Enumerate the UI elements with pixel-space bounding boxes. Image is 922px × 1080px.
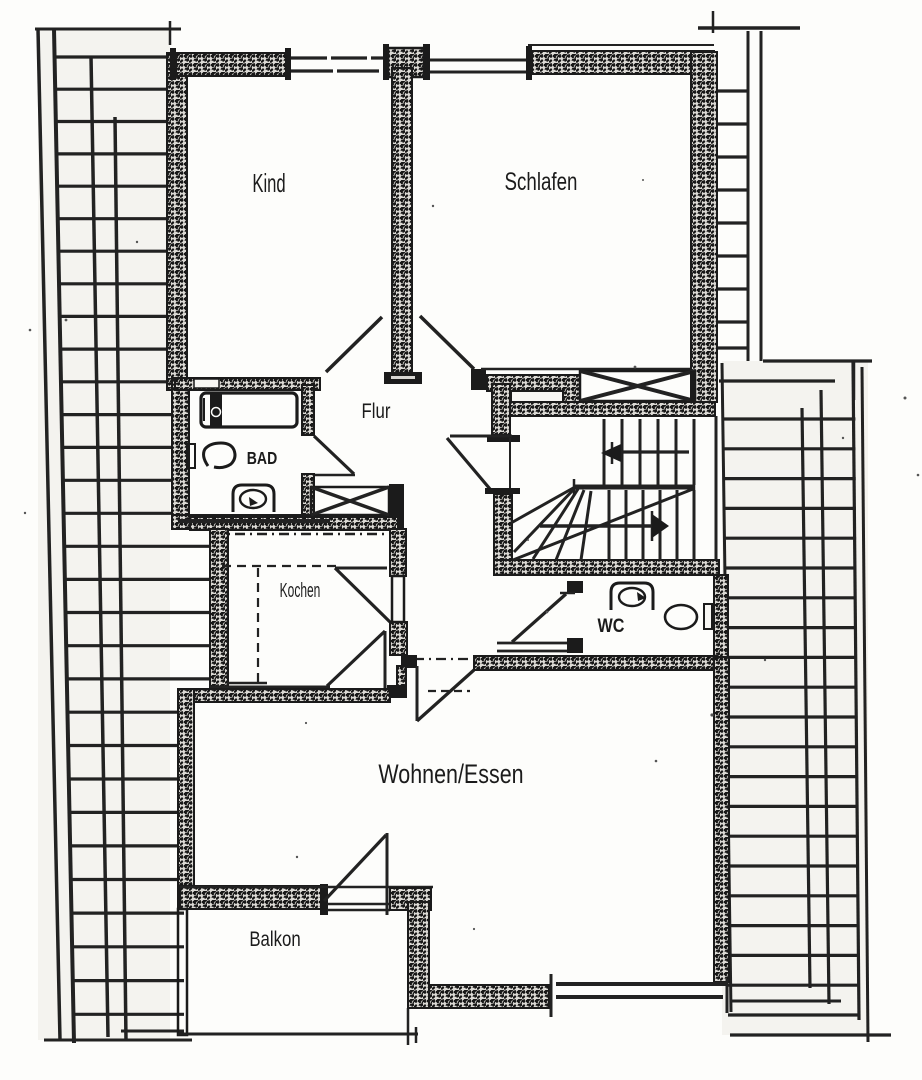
svg-text:Flur: Flur: [362, 400, 392, 423]
svg-text:Kochen: Kochen: [280, 580, 321, 602]
svg-text:BAD: BAD: [247, 448, 277, 468]
svg-text:Balkon: Balkon: [249, 928, 300, 951]
svg-text:Schlafen: Schlafen: [505, 167, 578, 195]
svg-text:WC: WC: [598, 615, 625, 637]
svg-text:Kind: Kind: [252, 168, 285, 198]
svg-text:Wohnen/Essen: Wohnen/Essen: [378, 760, 523, 790]
